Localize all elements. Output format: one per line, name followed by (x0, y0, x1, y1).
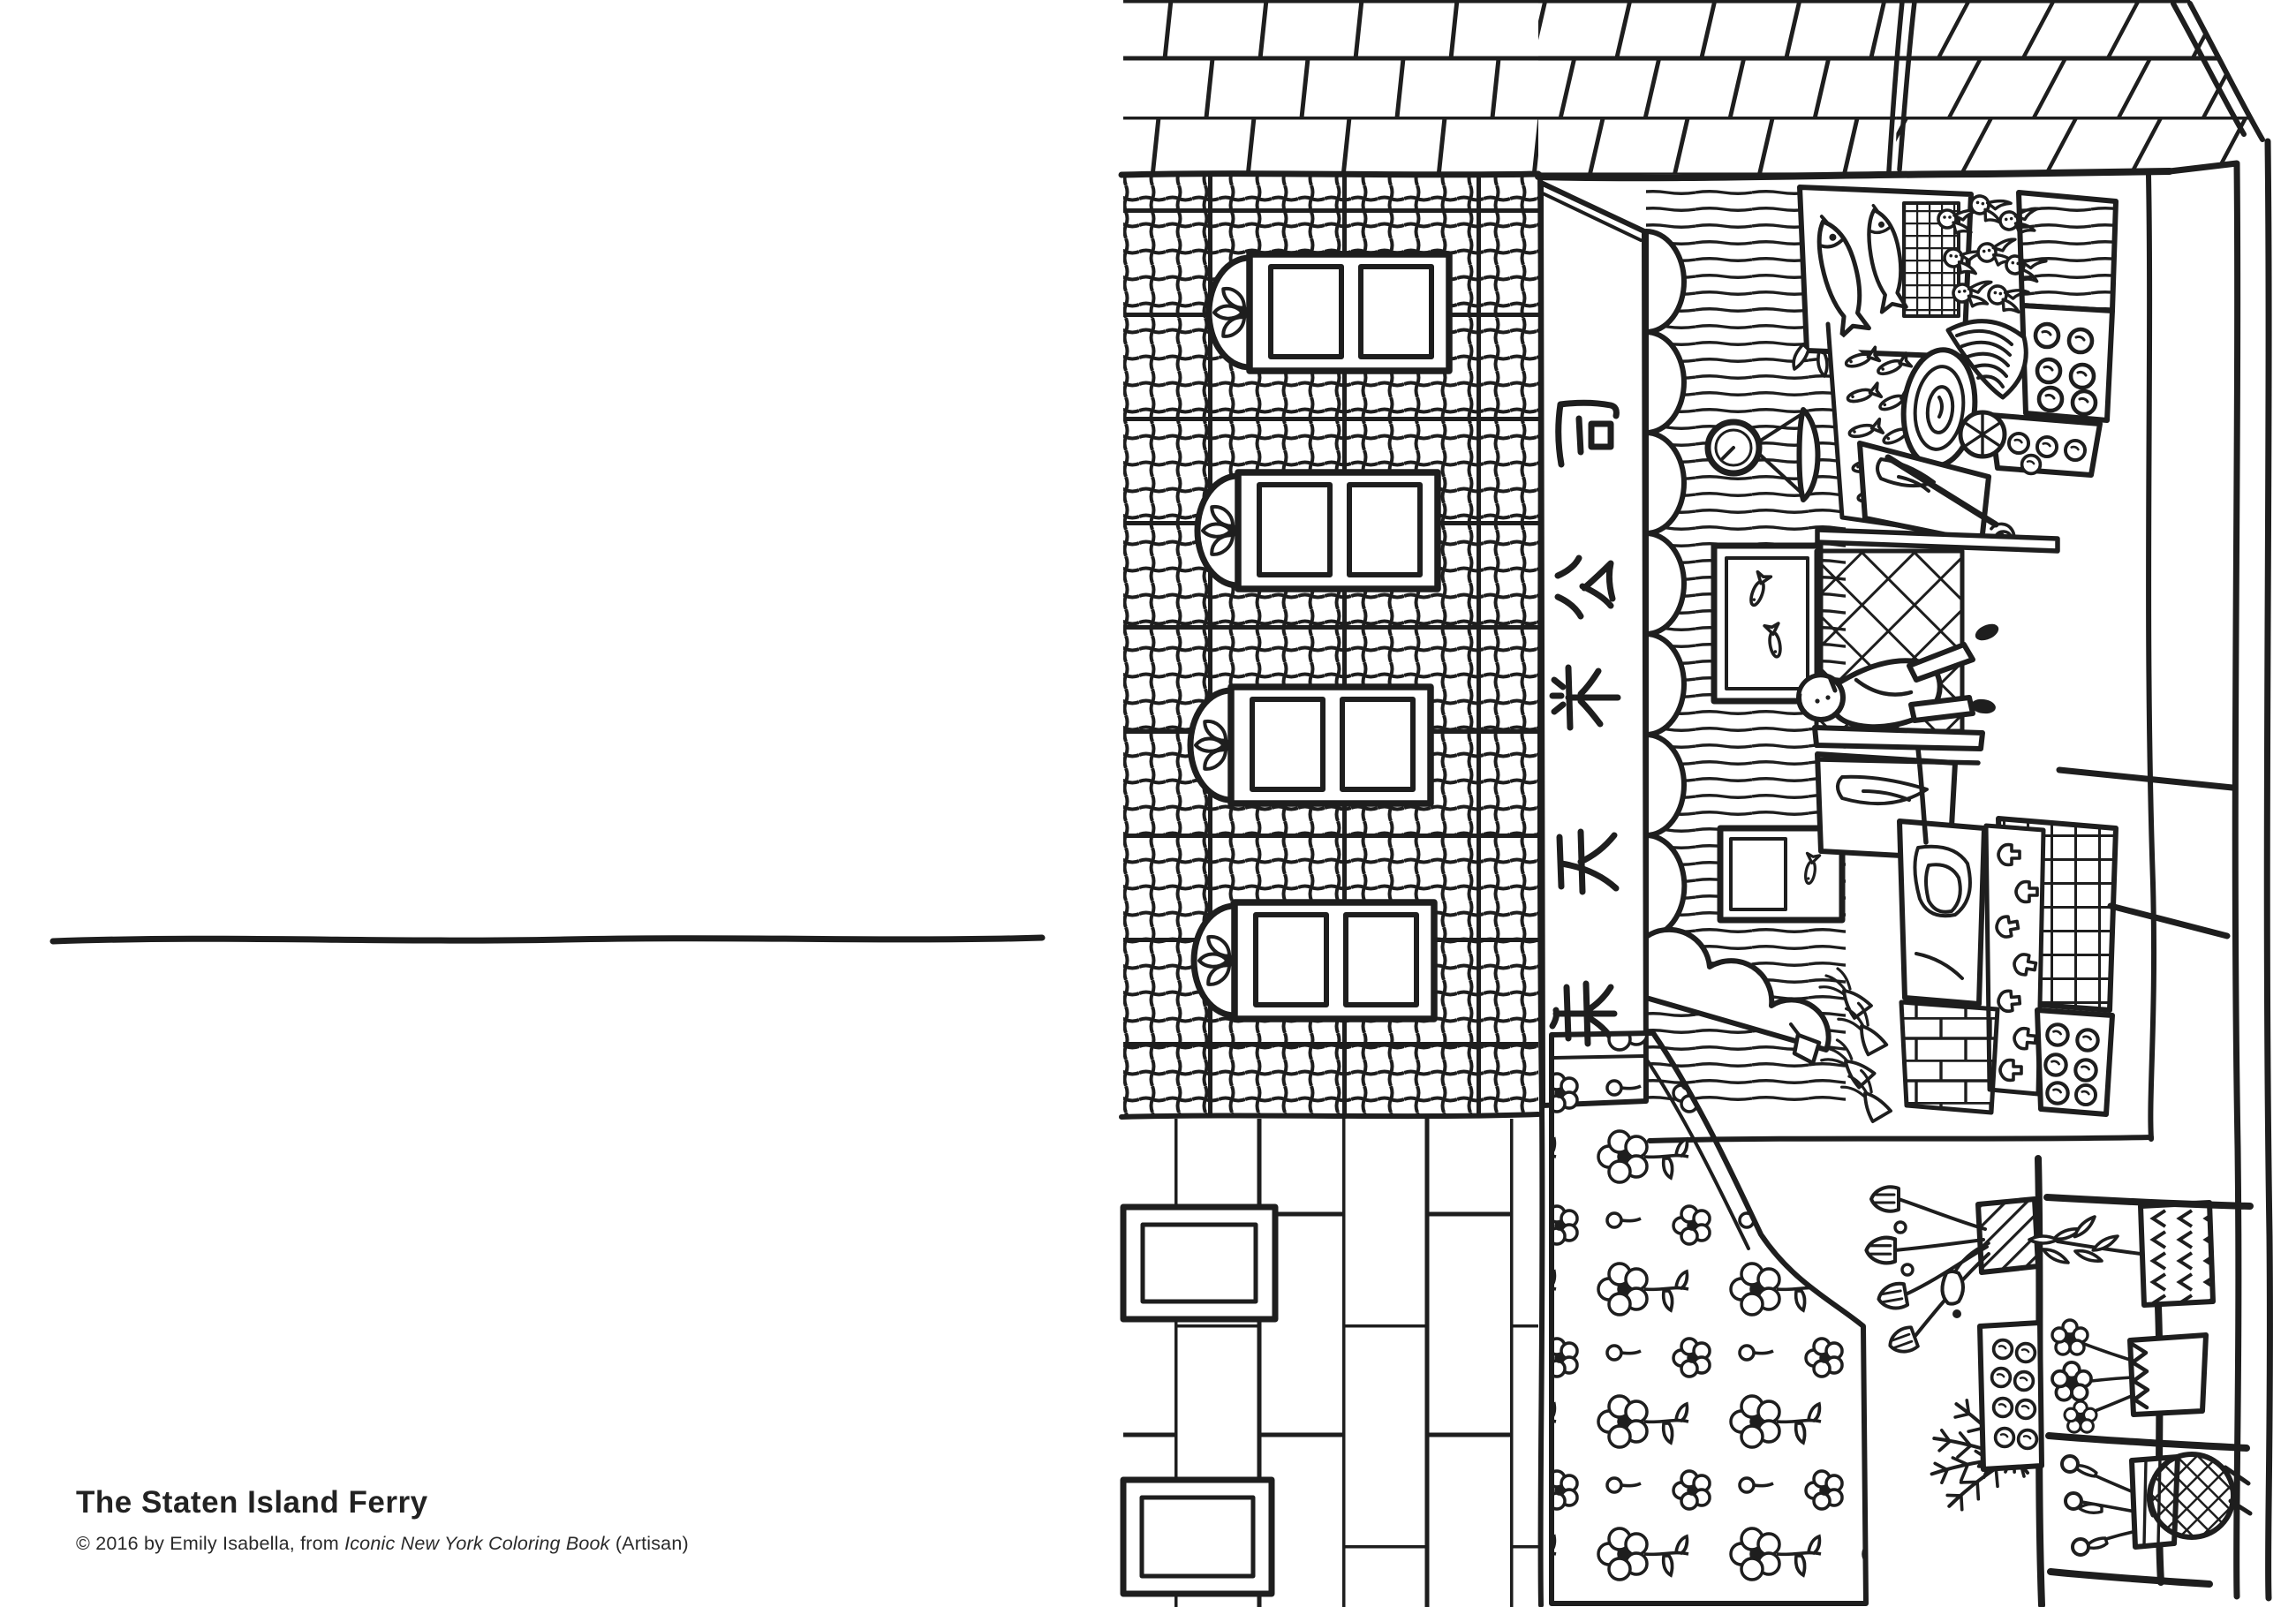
shingled-roof (1538, 0, 2262, 177)
credit-line: © 2016 by Emily Isabella, from Iconic Ne… (76, 1533, 1047, 1555)
credit-suffix: (Artisan) (610, 1533, 689, 1554)
sidewalk-line (1650, 1137, 2151, 1141)
bench-plank (1815, 728, 1983, 749)
coloring-page-illustration (0, 0, 2296, 1607)
ground-floor-window-1 (1123, 1207, 1275, 1319)
arched-window-4 (1194, 902, 1434, 1019)
credit-book-title: Iconic New York Coloring Book (344, 1533, 610, 1554)
page-title: The Staten Island Ferry (76, 1485, 1047, 1520)
chevron-pot (2141, 1203, 2213, 1305)
chinese-shop-sign (1541, 183, 1646, 1105)
ground-floor-window-2 (1123, 1480, 1272, 1594)
arched-window-2 (1197, 472, 1438, 589)
fish-picture-frame-1 (1714, 546, 1820, 701)
hatched-planter (1978, 1199, 2038, 1272)
arched-window-1 (1209, 254, 1449, 371)
book-spread: The Staten Island Ferry © 2016 by Emily … (0, 0, 2296, 1607)
sliced-roll (1960, 412, 2005, 456)
caption-block: The Staten Island Ferry © 2016 by Emily … (76, 1485, 1047, 1555)
hand-drawn-divider-line (53, 938, 1042, 941)
arched-window-3 (1190, 687, 1431, 803)
onion-crate-shelf (1980, 1323, 2042, 1469)
credit-prefix: © 2016 by Emily Isabella, from (76, 1533, 344, 1554)
onion-crate-bottom (2037, 1010, 2112, 1114)
brick-band (1123, 0, 1538, 173)
step-face (1901, 1002, 1998, 1113)
